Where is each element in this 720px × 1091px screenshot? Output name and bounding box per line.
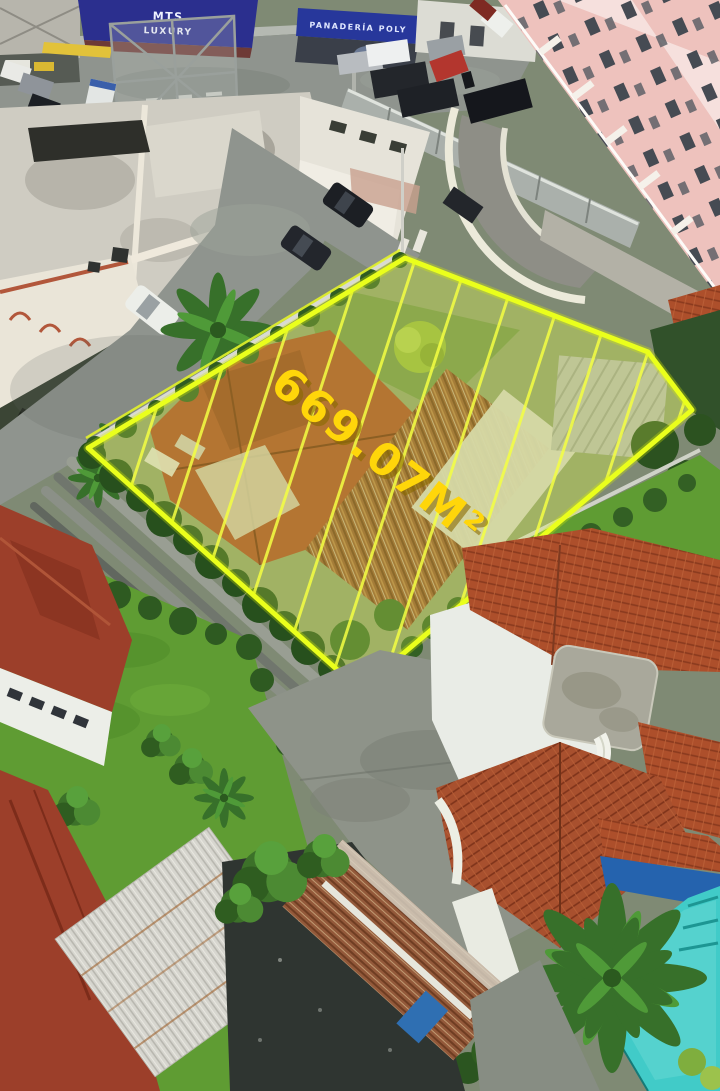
aerial-photo-frame: MTS LUXURY PANADERÍA POLY (0, 0, 720, 1091)
aerial-drone-photo: MTS LUXURY PANADERÍA POLY (0, 0, 720, 1091)
small-yellow-sign (34, 62, 54, 71)
